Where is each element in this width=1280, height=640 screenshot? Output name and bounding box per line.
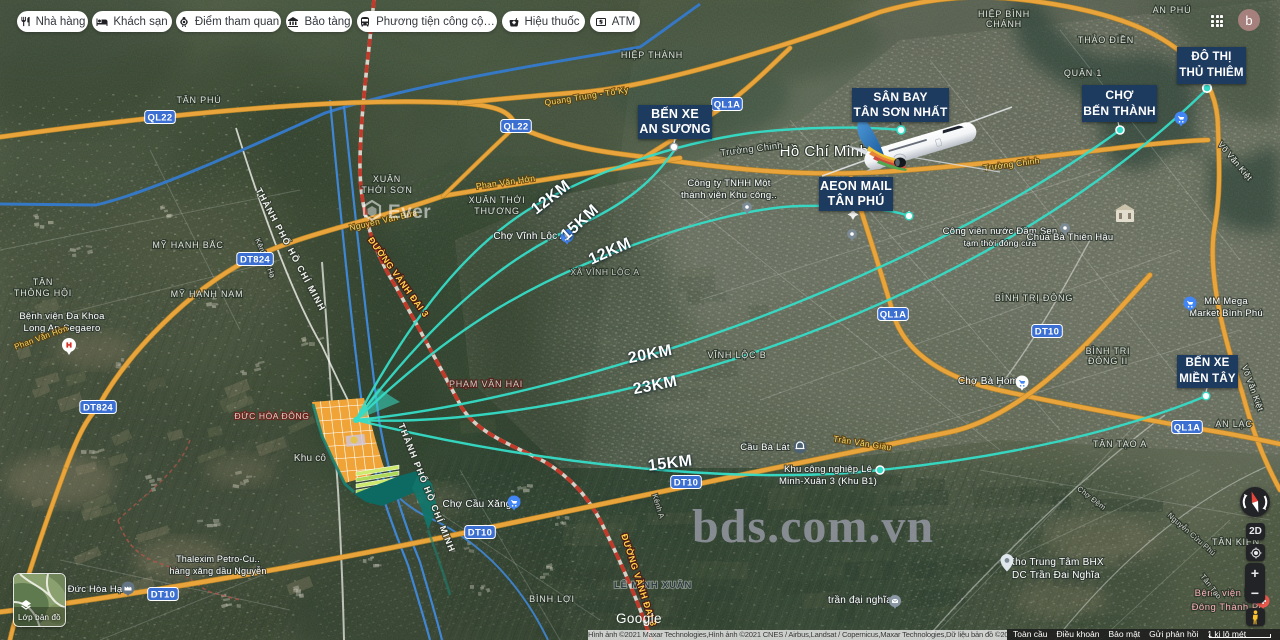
svg-text:QL1A: QL1A [714, 100, 741, 111]
svg-text:Chùa Bà Thiên Hậu: Chùa Bà Thiên Hậu [1027, 232, 1114, 243]
svg-text:Hồ Chí Minh: Hồ Chí Minh [780, 143, 869, 160]
svg-text:LÊ MINH XUÂN: LÊ MINH XUÂN [614, 579, 692, 591]
svg-text:TÂN: TÂN [33, 277, 53, 287]
svg-text:Khu công nghiệp Lê: Khu công nghiệp Lê [784, 464, 872, 475]
svg-text:Market Bình Phú: Market Bình Phú [1189, 308, 1263, 319]
svg-text:DC Trần Đai Nghĩa: DC Trần Đai Nghĩa [1012, 569, 1100, 581]
svg-text:XUÂN: XUÂN [373, 174, 401, 184]
svg-text:tạm thời đóng cửa: tạm thời đóng cửa [964, 238, 1037, 248]
svg-text:THỚI SƠN: THỚI SƠN [361, 185, 412, 195]
svg-text:VĨNH LỘC B: VĨNH LỘC B [707, 350, 766, 360]
svg-text:BÌNH TRỊ ĐÔNG: BÌNH TRỊ ĐÔNG [995, 293, 1073, 303]
svg-text:XÃ VĨNH LỘC A: XÃ VĨNH LỘC A [570, 267, 639, 277]
svg-text:CHÁNH: CHÁNH [986, 19, 1022, 29]
svg-text:Thalexim Petro-Cu..: Thalexim Petro-Cu.. [176, 554, 260, 564]
svg-text:THẢO ĐIỀN: THẢO ĐIỀN [1078, 34, 1134, 45]
svg-text:HIỆP BÌNH: HIỆP BÌNH [978, 9, 1030, 19]
svg-text:QL1A: QL1A [880, 310, 907, 321]
svg-text:XUÂN THỚI: XUÂN THỚI [469, 195, 526, 205]
svg-text:Minh-Xuân 3 (Khu B1): Minh-Xuân 3 (Khu B1) [779, 476, 877, 487]
svg-text:TÂN PHÚ: TÂN PHÚ [176, 95, 221, 105]
svg-text:HIỆP THÀNH: HIỆP THÀNH [621, 50, 683, 60]
svg-text:Kho Trung Tâm BHX: Kho Trung Tâm BHX [1008, 557, 1104, 568]
svg-text:THÔNG HỘI: THÔNG HỘI [14, 288, 72, 298]
svg-text:MỸ HẠNH NAM: MỸ HẠNH NAM [171, 289, 244, 299]
svg-text:THƯƠNG: THƯƠNG [474, 206, 520, 216]
svg-text:BÌNH TRỊ: BÌNH TRỊ [1086, 346, 1131, 356]
svg-text:Chợ Bà Hom: Chợ Bà Hom [958, 376, 1018, 387]
svg-text:Ever: Ever [388, 202, 431, 223]
svg-text:MM Mega: MM Mega [1204, 296, 1248, 307]
svg-text:Khu cô: Khu cô [294, 453, 327, 464]
svg-text:QUẬN 1: QUẬN 1 [1064, 68, 1102, 78]
svg-text:Đức Hòa Hạ: Đức Hòa Hạ [68, 584, 123, 595]
svg-text:QL1A: QL1A [1174, 423, 1201, 434]
svg-text:DT10: DT10 [468, 528, 492, 539]
svg-text:Bệnh viện Đa Khoa: Bệnh viện Đa Khoa [19, 311, 105, 322]
svg-text:thành viên Khu công..: thành viên Khu công.. [681, 190, 777, 201]
svg-text:DT824: DT824 [83, 403, 113, 414]
svg-text:BÌNH LỢI: BÌNH LỢI [529, 594, 575, 604]
svg-text:Chợ Vĩnh Lộc A: Chợ Vĩnh Lộc A [493, 231, 566, 242]
svg-text:Chợ Cầu Xăng: Chợ Cầu Xăng [443, 498, 512, 510]
svg-text:hàng xăng dầu Nguyễn: hàng xăng dầu Nguyễn [169, 566, 266, 576]
svg-text:TÂN TẠO A: TÂN TẠO A [1093, 439, 1147, 449]
svg-text:DT824: DT824 [240, 255, 270, 266]
svg-text:DT10: DT10 [1035, 327, 1059, 338]
svg-text:Cầu Bà Lát: Cầu Bà Lát [740, 442, 790, 453]
svg-text:QL22: QL22 [148, 113, 173, 124]
svg-text:trần đại nghĩa: trần đại nghĩa [828, 594, 892, 606]
svg-text:MỸ HẠNH BẮC: MỸ HẠNH BẮC [152, 240, 223, 250]
svg-text:Công ty TNHH Một: Công ty TNHH Một [687, 178, 770, 189]
svg-text:PHẠM VĂN HAI: PHẠM VĂN HAI [449, 379, 523, 389]
svg-text:AN LẠC: AN LẠC [1215, 419, 1252, 429]
svg-text:ĐÔNG II: ĐÔNG II [1088, 356, 1128, 366]
svg-text:AN PHÚ: AN PHÚ [1153, 5, 1192, 15]
svg-text:ĐỨC HÒA ĐÔNG: ĐỨC HÒA ĐÔNG [235, 411, 310, 421]
svg-text:DT10: DT10 [151, 590, 175, 601]
svg-text:DT10: DT10 [674, 478, 698, 489]
svg-text:QL22: QL22 [504, 122, 529, 133]
